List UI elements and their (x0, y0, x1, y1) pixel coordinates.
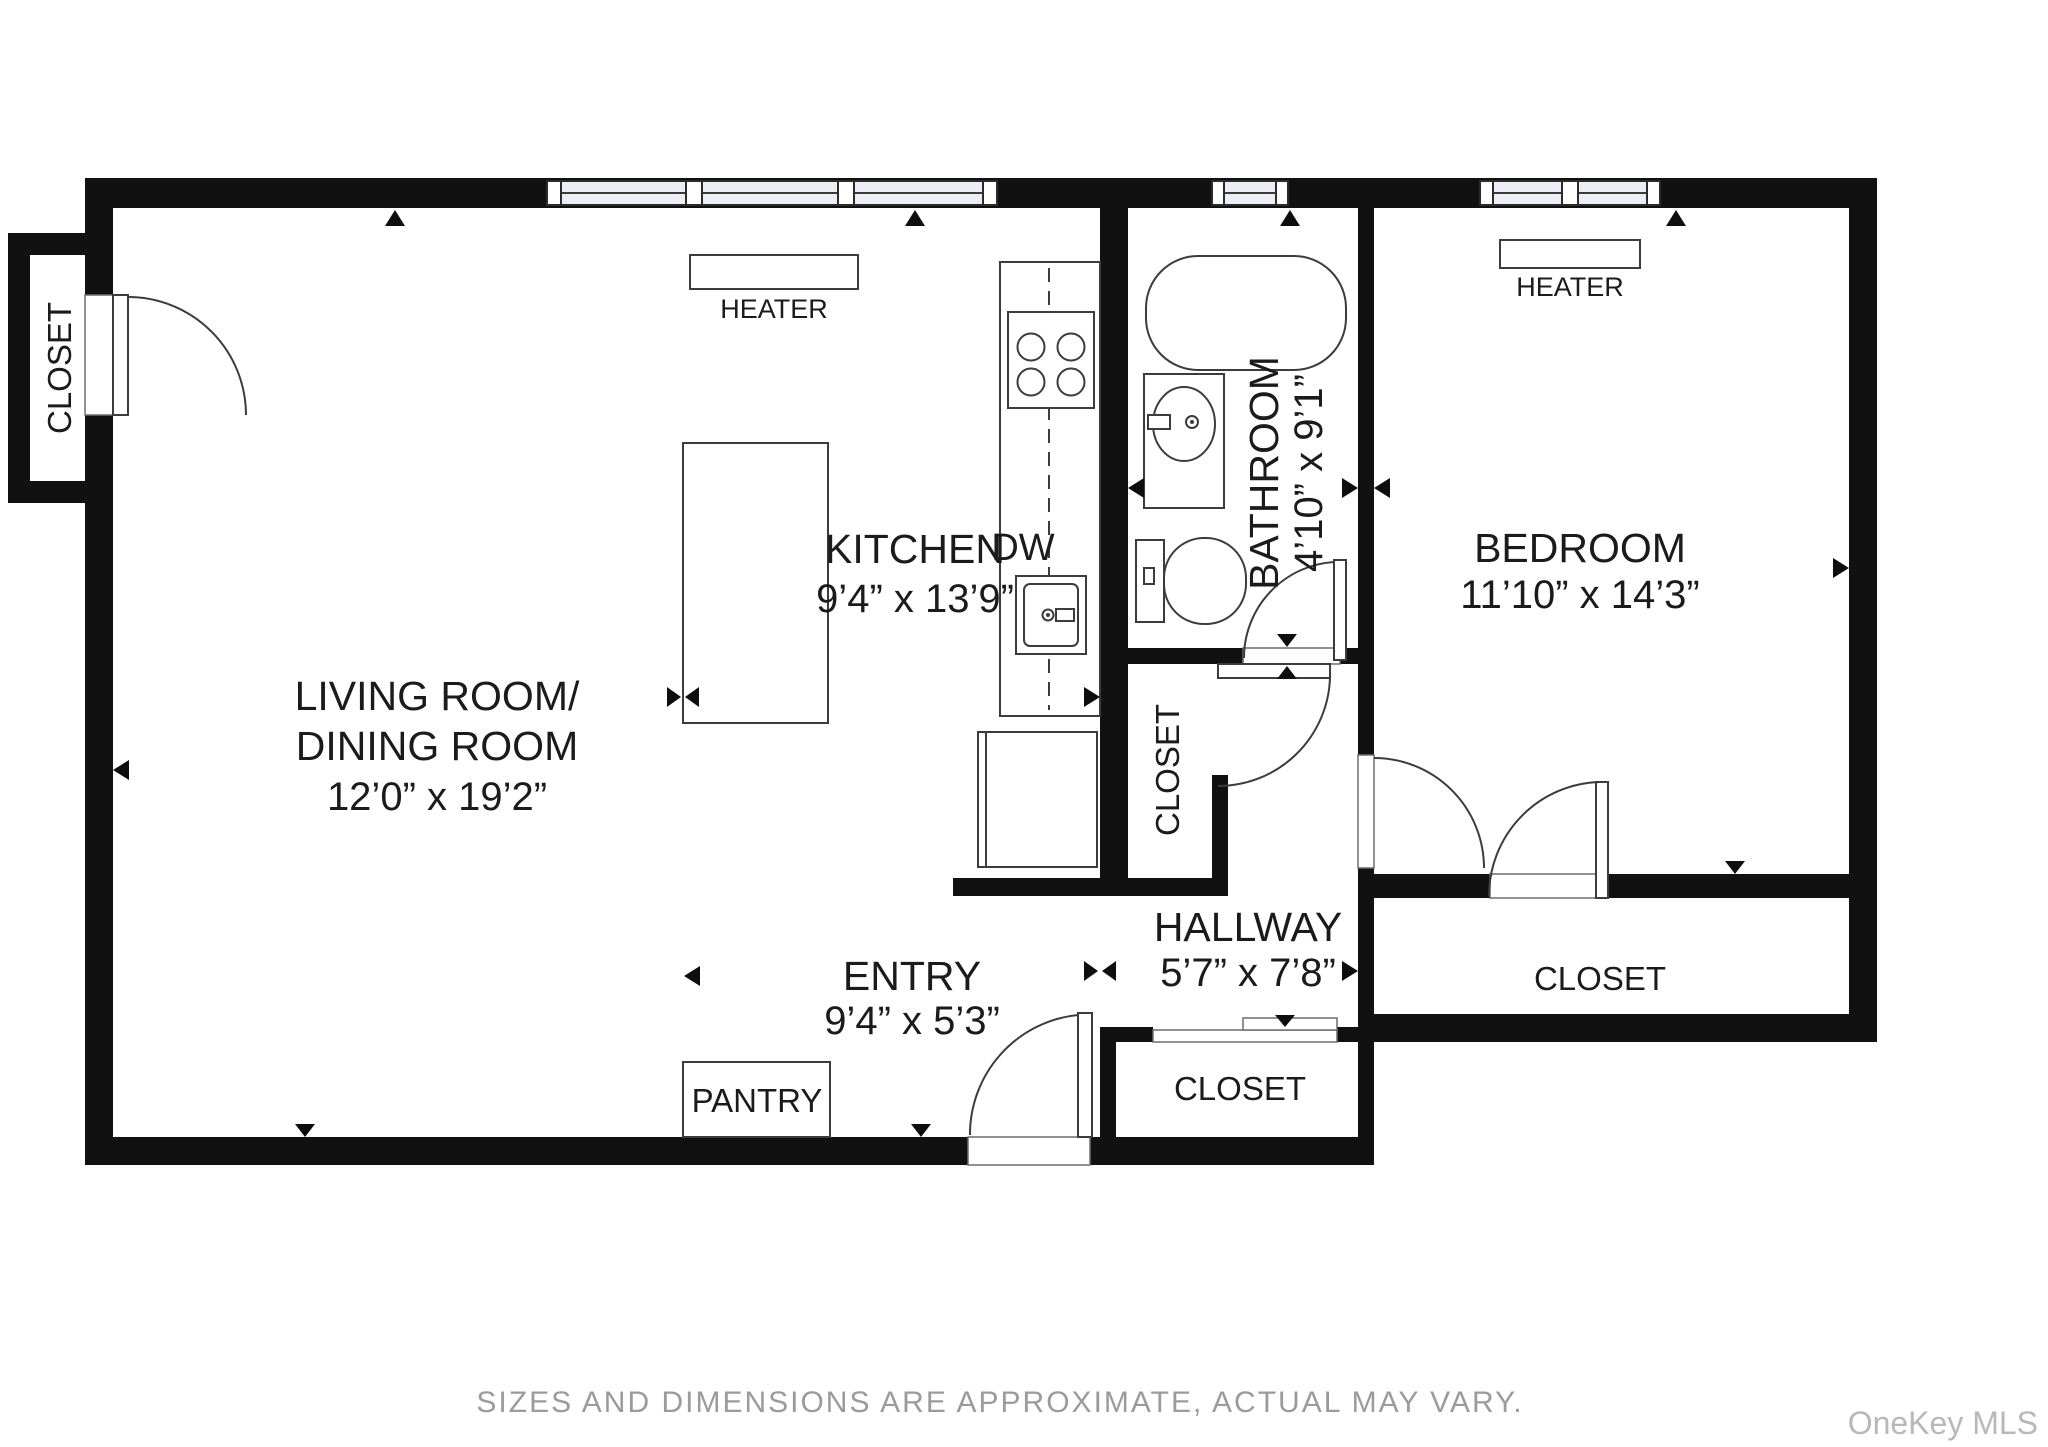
wall-bathroom-bottom-left (1128, 648, 1243, 664)
door-leaf (1596, 782, 1608, 898)
pantry-label: PANTRY (692, 1082, 823, 1119)
bathroom-dims: 4’10” x 9’1” (1287, 374, 1331, 572)
door-bedroom-closet (1489, 782, 1608, 898)
heater-living-label: HEATER (720, 294, 828, 324)
wall-bottom-closet-top-b (1337, 1027, 1358, 1042)
heater-living-box (690, 255, 858, 289)
wall-tl-closet-top (8, 233, 85, 255)
marker-down-entry (911, 1124, 931, 1137)
footer: SIZES AND DIMENSIONS ARE APPROXIMATE, AC… (476, 1386, 2038, 1441)
door-leaf (1334, 560, 1346, 660)
window-endcap (1647, 181, 1660, 205)
wall-middle-closet-right (1212, 775, 1228, 878)
footer-caption: SIZES AND DIMENSIONS ARE APPROXIMATE, AC… (476, 1386, 1523, 1419)
mls-watermark: OneKey MLS (1848, 1405, 2038, 1441)
marker-hallway-right (1342, 961, 1358, 981)
wall-bathroom-bedroom (1358, 208, 1374, 755)
bathroom-sink (1144, 374, 1224, 508)
door-swing-arc (128, 297, 246, 415)
bedroom-dims: 11’10” x 14’3” (1460, 573, 1699, 617)
window-bedroom (1480, 181, 1660, 205)
bathroom-name: BATHROOM (1241, 356, 1287, 590)
door-opening (968, 1137, 1090, 1165)
closet-bedroom-label: CLOSET (1534, 960, 1666, 997)
window-living-kitchen (547, 181, 997, 205)
wall-tl-closet-left (8, 233, 30, 503)
kitchen-dims: 9’4” x 13’9” (816, 577, 1014, 621)
door-leaf (113, 295, 128, 415)
bedroom-name: BEDROOM (1474, 525, 1686, 571)
toilet-bowl (1164, 538, 1246, 624)
label-entry: ENTRY 9’4” x 5’3” (824, 953, 1000, 1043)
closet-middle-label: CLOSET (1149, 704, 1186, 836)
door-swing-arc (1374, 758, 1484, 868)
marker-up-bedroom (1666, 210, 1686, 226)
marker-living-floating (684, 966, 700, 986)
label-bathroom: BATHROOM 4’10” x 9’1” (1241, 356, 1331, 590)
window-endcap (1480, 181, 1493, 205)
marker-down-living (295, 1124, 315, 1137)
window-mullion (686, 181, 702, 205)
window-endcap (983, 181, 997, 205)
floorplan-canvas: HEATER HEATER (0, 0, 2048, 1447)
kitchen-island (683, 443, 828, 723)
floorplan-page: HEATER HEATER (0, 0, 2048, 1447)
bathtub (1146, 256, 1346, 370)
hallway-name: HALLWAY (1154, 904, 1342, 950)
refrigerator-body (978, 732, 1097, 867)
marker-down-bedroom-closet (1725, 861, 1745, 874)
sink-handle (1056, 609, 1074, 621)
wall-bedroom-closet-left (1374, 874, 1490, 898)
refrigerator (978, 732, 1097, 867)
label-closet-middle: CLOSET (1149, 704, 1186, 836)
window-endcap (1212, 181, 1224, 205)
label-bedroom: BEDROOM 11’10” x 14’3” (1460, 525, 1699, 617)
marker-bathroom-right-a (1342, 478, 1358, 498)
wall-bedroom-closet-right (1603, 874, 1849, 898)
marker-up-living (385, 210, 405, 226)
kitchen-name: KITCHEN (825, 526, 1005, 572)
entry-dims: 9’4” x 5’3” (824, 999, 1000, 1043)
wall-kitchen-bathroom (1100, 208, 1128, 896)
marker-entry-hall-a (1084, 961, 1098, 981)
living-name-line1: LIVING ROOM/ (295, 673, 580, 719)
door-middle-closet (1218, 664, 1330, 786)
marker-up-kitchen (905, 210, 925, 226)
marker-bathroom-left (1128, 478, 1144, 498)
closet-top-left-label: CLOSET (41, 302, 78, 434)
window-endcap (1276, 181, 1288, 205)
bottom-closet-shelf (1153, 1018, 1337, 1042)
wall-bottom-left (85, 1137, 968, 1165)
living-dims: 12’0” x 19’2” (327, 775, 547, 819)
marker-bathroom-right-b (1374, 478, 1390, 498)
door-opening (1243, 648, 1340, 664)
window-bathroom (1212, 181, 1288, 205)
sink-faucet (1148, 415, 1170, 429)
stove (1008, 312, 1094, 408)
marker-left-wall (113, 760, 129, 780)
closet-bottom-label: CLOSET (1174, 1070, 1306, 1107)
wall-right-outer (1849, 178, 1877, 1042)
marker-entry-hall-b (1102, 961, 1116, 981)
door-swing-arc (1218, 678, 1330, 786)
kitchen-sink (1016, 576, 1086, 654)
marker-island-a (667, 687, 681, 707)
window-mullion (838, 181, 854, 205)
marker-bathroom-door-a (1277, 634, 1297, 647)
label-closet-top-left: CLOSET (41, 302, 78, 434)
wall-hallway-bedroom-lower (1358, 868, 1374, 1165)
door-leaf (1078, 1013, 1092, 1137)
marker-up-bathroom (1280, 210, 1300, 226)
pantry: PANTRY (683, 1062, 830, 1137)
sink-drain-dot (1190, 420, 1194, 424)
wall-kitchen-entry-stub (953, 878, 1228, 896)
door-hallway-bedroom (1358, 755, 1484, 868)
living-name-line2: DINING ROOM (296, 723, 578, 769)
door-leaf (1218, 664, 1330, 678)
wall-bottom-middle (1090, 1137, 1374, 1165)
window-mullion (1562, 181, 1578, 205)
entry-name: ENTRY (843, 953, 981, 999)
label-living-room: LIVING ROOM/ DINING ROOM 12’0” x 19’2” (295, 673, 580, 819)
room-labels: LIVING ROOM/ DINING ROOM 12’0” x 19’2” K… (41, 302, 1700, 1107)
window-endcap (547, 181, 561, 205)
toilet (1136, 538, 1246, 624)
hallway-dims: 5’7” x 7’8” (1160, 951, 1336, 995)
door-opening (1358, 755, 1374, 868)
label-hallway: HALLWAY 5’7” x 7’8” (1154, 904, 1342, 995)
wall-bottom-closet-left (1100, 1027, 1116, 1165)
door-top-left-closet (85, 295, 246, 415)
closet-shelf-line (1153, 1030, 1337, 1042)
wall-bottom-closet-top-a (1116, 1027, 1153, 1042)
wall-tl-closet-bottom (8, 481, 85, 503)
door-opening (85, 295, 113, 415)
heater-bedroom-box (1500, 240, 1640, 268)
heater-bedroom-label: HEATER (1516, 272, 1624, 302)
marker-right-wall (1833, 558, 1849, 578)
dishwasher-label: DW (991, 527, 1054, 569)
sink-faucet-dot (1046, 613, 1050, 617)
toilet-flush-button (1144, 568, 1154, 584)
door-opening (1490, 874, 1603, 898)
stove-body (1008, 312, 1094, 408)
wall-bottom-right-closet (1374, 1014, 1877, 1042)
